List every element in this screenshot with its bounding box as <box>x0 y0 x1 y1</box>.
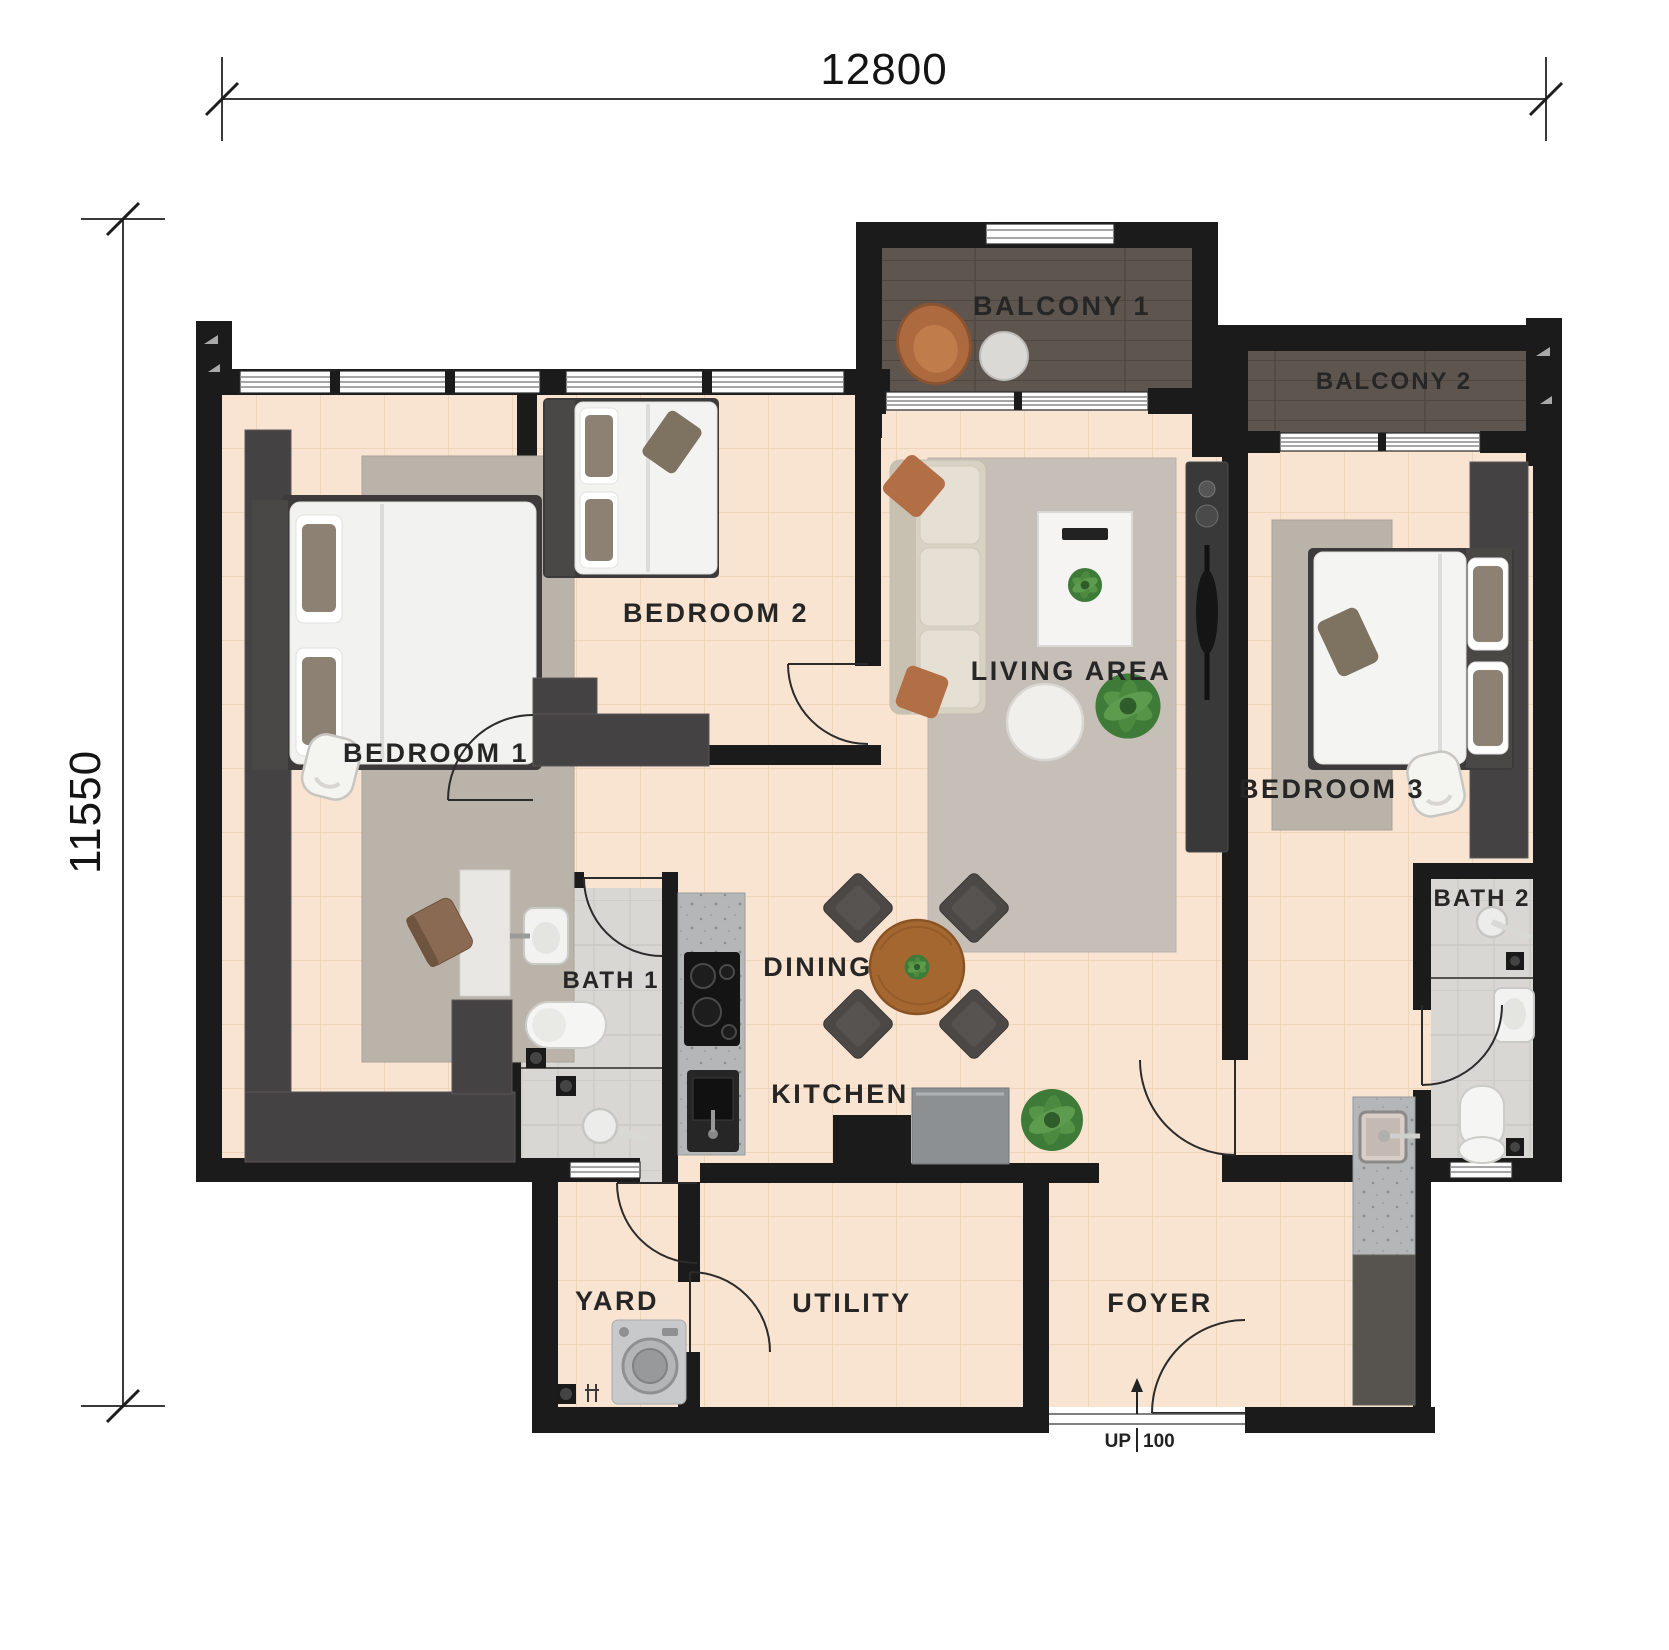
bedroom1-bed <box>252 495 542 770</box>
dimension-top: 12800 <box>206 45 1562 141</box>
wall-segment <box>1245 1407 1435 1433</box>
dimension-height-label: 11550 <box>61 750 110 874</box>
living-coffee-table <box>1038 512 1132 646</box>
wall-segment <box>1413 879 1431 1010</box>
wall-segment <box>833 1115 911 1181</box>
foyer-cabinet <box>1353 1255 1415 1405</box>
dimension-left: 11550 <box>61 203 165 1422</box>
wall-segment <box>1218 351 1248 439</box>
room-label-yard: YARD <box>575 1286 659 1316</box>
sliding-door-balcony-2 <box>1280 433 1480 451</box>
bedroom1-closet <box>452 1000 512 1094</box>
floor-plan-page: 12800 11550 <box>0 0 1669 1650</box>
window-bedroom-2 <box>566 371 844 393</box>
balcony1-side-table <box>980 332 1028 380</box>
window-bedroom-1 <box>240 371 540 393</box>
sink-bowl <box>1502 998 1526 1030</box>
wall-segment <box>1222 1155 1248 1182</box>
toilet-tank <box>1459 1137 1505 1163</box>
toilet-bowl <box>532 1008 566 1042</box>
room-label-bedroom-3: BEDROOM 3 <box>1239 774 1425 804</box>
sliding-door-balcony-1 <box>886 392 1148 410</box>
room-label-bedroom-2: BEDROOM 2 <box>623 598 809 628</box>
wall-segment <box>1148 388 1218 414</box>
pillow <box>585 499 613 561</box>
bedroom2-bed <box>543 398 719 578</box>
entrance-rise-label: 100 <box>1143 1431 1175 1452</box>
entrance-up-label: UP <box>1105 1431 1132 1452</box>
pillow <box>1473 670 1503 746</box>
bedroom2-wardrobe <box>533 714 709 766</box>
wall-segment <box>196 369 222 1182</box>
wall-segment <box>678 1182 700 1282</box>
pillow <box>302 524 336 612</box>
wall-segment <box>532 1407 1049 1433</box>
wall-segment <box>1480 431 1526 453</box>
shower-head <box>583 1109 617 1143</box>
kitchen-sink <box>687 1070 739 1152</box>
pillow <box>1473 566 1503 642</box>
window-bath-2 <box>1450 1162 1512 1178</box>
plant-icon <box>1021 1089 1083 1151</box>
wall-segment <box>1023 1182 1049 1407</box>
living-side-table <box>1007 684 1083 760</box>
room-label-dining: DINING <box>763 952 873 982</box>
sink-bowl <box>532 922 560 954</box>
room-label-foyer: FOYER <box>1107 1288 1213 1318</box>
room-label-bath-2: BATH 2 <box>1434 885 1531 912</box>
stove <box>684 952 740 1046</box>
window-bath-1 <box>570 1162 640 1178</box>
wall-segment <box>1526 318 1562 466</box>
kitchen-counter <box>678 893 745 1155</box>
room-label-kitchen: KITCHEN <box>771 1079 909 1109</box>
tv-console <box>1186 462 1228 852</box>
wall-segment <box>1218 325 1528 351</box>
dimension-width-label: 12800 <box>820 45 947 94</box>
wall-segment <box>1413 863 1561 879</box>
remote-control <box>1062 528 1108 540</box>
balcony-railing <box>986 224 1114 244</box>
wall-segment <box>855 394 881 666</box>
bedroom3-bed <box>1308 548 1514 770</box>
room-label-bath-1: BATH 1 <box>563 967 660 994</box>
plant-icon <box>905 955 930 980</box>
pillow <box>585 415 613 477</box>
bedroom1-closet <box>245 1092 515 1162</box>
fridge <box>912 1088 1009 1164</box>
wall-segment <box>1248 431 1280 453</box>
room-label-balcony-2: BALCONY 2 <box>1316 368 1472 395</box>
room-label-balcony-1: BALCONY 1 <box>973 291 1151 321</box>
plant-icon <box>1068 568 1102 602</box>
wall-segment <box>1413 1182 1431 1407</box>
floor-plan-canvas: 12800 11550 <box>0 0 1669 1650</box>
wall-segment <box>662 872 678 1182</box>
wall-segment <box>532 1182 558 1431</box>
wall-segment <box>1533 466 1562 863</box>
foyer-basin-counter <box>1353 1097 1420 1405</box>
wall-segment <box>856 388 886 414</box>
room-label-utility: UTILITY <box>792 1288 912 1318</box>
wall-segment <box>1533 863 1562 1182</box>
pillow <box>302 657 336 745</box>
room-label-living-area: LIVING AREA <box>971 656 1172 686</box>
washing-machine <box>612 1320 686 1404</box>
sofa-cushion <box>920 548 980 626</box>
room-label-bedroom-1: BEDROOM 1 <box>343 738 529 768</box>
